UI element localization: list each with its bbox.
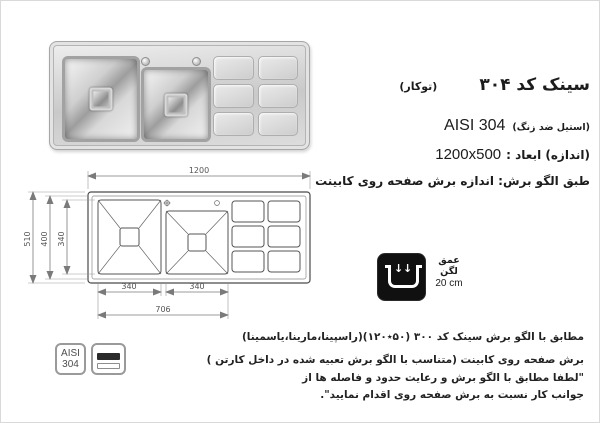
dim-width: 1200 bbox=[88, 166, 310, 189]
dim-bowl2-width-label: 340 bbox=[189, 282, 204, 291]
aisi-badge-line1: AISI bbox=[61, 348, 80, 359]
footnotes-block: مطابق با الگو برش سینک کد ۳۰۰ (۵۰٭۱۲۰)(ر… bbox=[207, 330, 584, 402]
steel-sheet-icon bbox=[91, 343, 126, 375]
tap-hole-left bbox=[141, 57, 150, 66]
bowl-cross-section-icon bbox=[388, 268, 419, 288]
dim-bowls-total-label: 706 bbox=[155, 305, 170, 314]
drainboard bbox=[213, 56, 298, 136]
drawing-bowl-middle bbox=[166, 211, 228, 274]
drainboard-panel bbox=[213, 84, 254, 108]
page-title: سینک کد ۳۰۴ bbox=[479, 75, 590, 95]
spec-sheet-page: سینک کد ۳۰۴ (توکار) (استیل ضد زنگ) AISI … bbox=[0, 0, 600, 423]
tap-hole-right bbox=[192, 57, 201, 66]
title-line: سینک کد ۳۰۴ (توکار) bbox=[315, 75, 590, 95]
depth-label-block: عمق لگن 20 cm bbox=[429, 255, 469, 289]
note-line: برش صفحه روی کابینت (متناسب با الگو برش … bbox=[207, 353, 584, 367]
spec-text-block: سینک کد ۳۰۴ (توکار) (استیل ضد زنگ) AISI … bbox=[315, 75, 590, 188]
mount-type-label: (توکار) bbox=[399, 80, 437, 93]
note-line: جوانب کار نسبت به برش صفحه روی اقدام نما… bbox=[207, 388, 584, 402]
note-line: "لطفا مطابق با الگو برش و رعایت حدود و ف… bbox=[207, 371, 584, 385]
drain-middle bbox=[165, 93, 188, 116]
steel-grade: AISI 304 bbox=[444, 117, 505, 135]
drain-left bbox=[90, 88, 113, 111]
drainboard-panel bbox=[213, 112, 254, 136]
cut-template-note: طبق الگو برش: اندازه برش صفحه روی کابینت bbox=[315, 174, 590, 188]
bowl-depth-icon: ↓ ↓ bbox=[378, 254, 425, 300]
dim-height-inner-label: 400 bbox=[40, 231, 49, 246]
depth-value: 20 cm bbox=[429, 278, 469, 289]
steel-grade-note: (استیل ضد زنگ) bbox=[512, 122, 590, 133]
dimensions-label: (اندازه) ابعاد : bbox=[506, 148, 590, 162]
depth-label: عمق لگن bbox=[429, 255, 469, 277]
dim-height-outer-label: 510 bbox=[23, 231, 32, 246]
technical-drawing: 1200 510 400 340 340 340 bbox=[11, 161, 331, 331]
dim-bowls-total: 706 bbox=[98, 305, 228, 315]
drainboard-panel bbox=[258, 112, 299, 136]
aisi-badge: AISI 304 bbox=[55, 343, 86, 375]
product-photo bbox=[49, 41, 310, 150]
drainboard-panel bbox=[213, 56, 254, 80]
steel-grade-line: (استیل ضد زنگ) AISI 304 bbox=[315, 117, 590, 135]
drawing-bowl-left bbox=[98, 200, 161, 274]
dim-bowl1-width-label: 340 bbox=[121, 282, 136, 291]
dimensions-line: (اندازه) ابعاد : 1200x500 bbox=[315, 146, 590, 163]
sink-bowl-left bbox=[62, 56, 140, 142]
aisi-badge-line2: 304 bbox=[62, 359, 79, 370]
dim-height-outer: 510 bbox=[23, 192, 85, 283]
steel-sheet-light-bar bbox=[97, 363, 120, 369]
steel-sheet-dark-bar bbox=[97, 353, 120, 360]
sink-bowl-middle bbox=[141, 67, 211, 142]
drainboard-panel bbox=[258, 84, 299, 108]
note-line: مطابق با الگو برش سینک کد ۳۰۰ (۵۰٭۱۲۰)(ر… bbox=[207, 330, 584, 344]
dim-bowl-height-label: 340 bbox=[57, 231, 66, 246]
dimensions-value: 1200x500 bbox=[435, 146, 501, 163]
drainboard-panel bbox=[258, 56, 299, 80]
dim-width-label: 1200 bbox=[189, 166, 209, 175]
